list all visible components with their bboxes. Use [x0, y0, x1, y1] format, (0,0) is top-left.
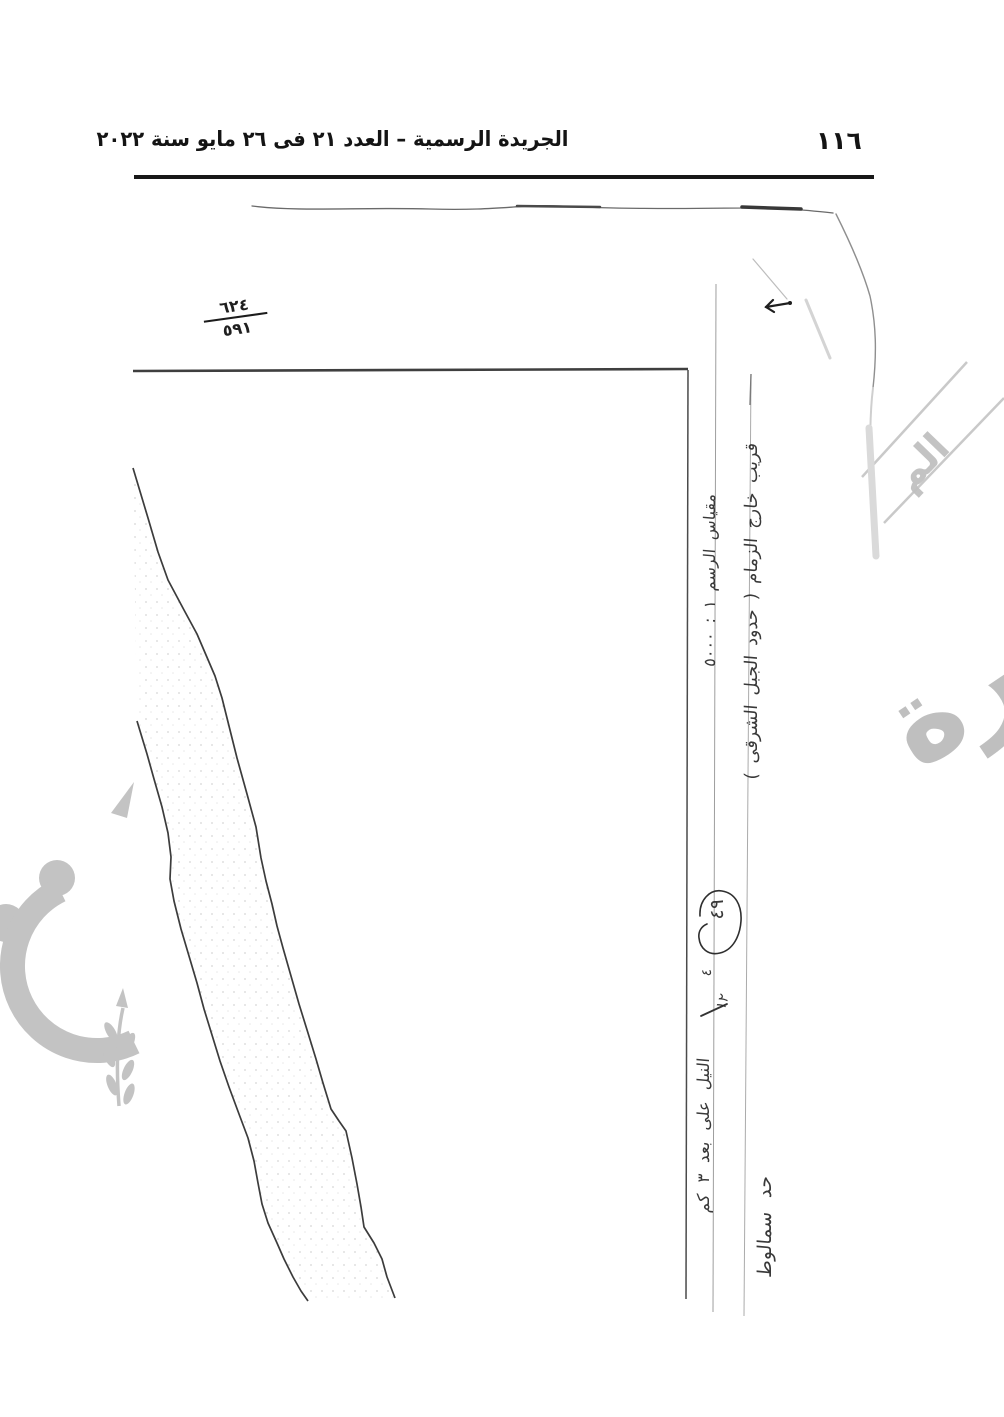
header-rule: [134, 175, 874, 179]
gazette-page: الجريدة الرسمية – العدد ٢١ فى ٢٦ مايو سن…: [0, 0, 1004, 1417]
watermark-wedge: [111, 782, 134, 818]
faint-leader-line: [753, 259, 787, 299]
scan-shadow-diagonal: [806, 300, 830, 358]
terrain-band: [133, 468, 395, 1301]
watermark-crescent: [12, 890, 134, 1051]
circled-number: ٤٩: [706, 898, 728, 952]
scribble-a: ٤: [699, 968, 715, 993]
watermark-stamp-border: [862, 362, 1004, 523]
scan-edge-top-dark-1: [517, 206, 600, 207]
boundary-line-dark-tip: [750, 374, 751, 405]
fold-line: [713, 284, 716, 1312]
annotation-samalut-boundary: حد سمالوط: [754, 1175, 776, 1312]
scan-shadow-streak: [869, 428, 876, 556]
map-border-top: [133, 369, 688, 371]
gazette-header-title: الجريدة الرسمية – العدد ٢١ فى ٢٦ مايو سن…: [256, 127, 568, 151]
double-arrow-mark: [766, 300, 792, 312]
annotation-nile-note: النيل على بعد ٣ كم: [694, 1057, 713, 1307]
sketch-canvas: [0, 0, 1004, 1417]
plot-number-fraction: ٦٢٤ ٥٩١: [201, 292, 270, 342]
scan-edge-right: [836, 214, 875, 388]
scan-artifacts: [252, 206, 876, 556]
page-number: ١١٦: [816, 126, 862, 155]
scan-edge-top-dark-2: [742, 207, 801, 209]
annotation-outside-zimam: قريب خارج الزمام ( حدود الجبل الشرقى ): [742, 442, 762, 874]
annotation-scale: مقياس الرسم ١ : ٥٠٠٠: [700, 493, 719, 747]
map-border-right: [686, 370, 688, 1299]
